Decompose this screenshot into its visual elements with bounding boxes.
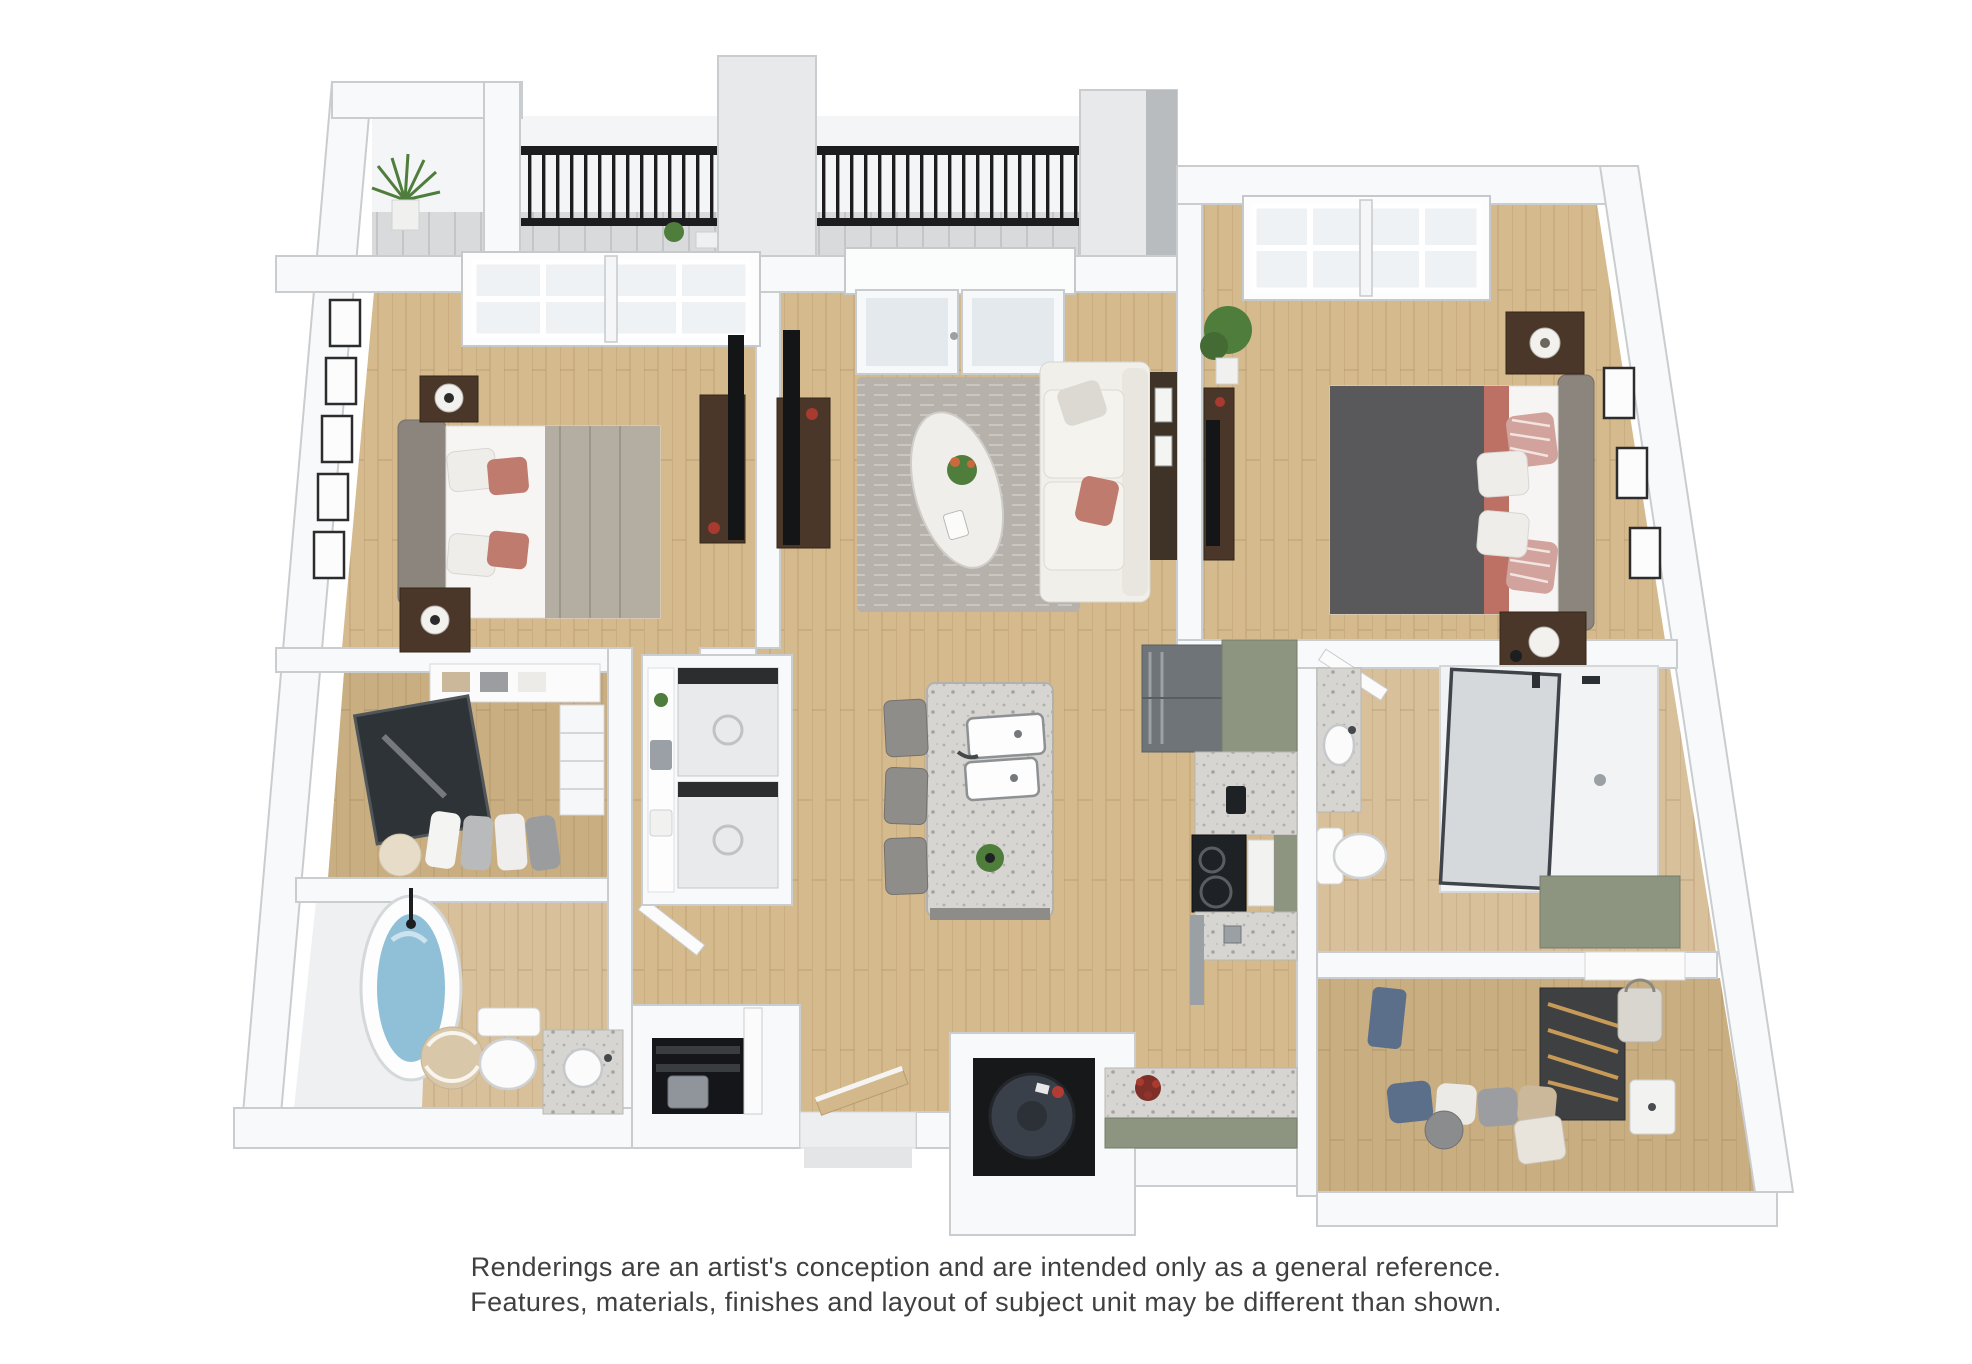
entry-closet-door-leaf xyxy=(744,1008,762,1114)
bedroom2-console-decor xyxy=(1215,397,1225,407)
entry-closet-safe xyxy=(668,1076,708,1108)
sofa-backrest xyxy=(1122,368,1148,596)
coffee-table-flowers-2 xyxy=(967,460,975,468)
bedroom2-pillow-white-1 xyxy=(1477,450,1530,497)
laundry-basket xyxy=(650,810,672,836)
bedroom2-lamp-top-finial xyxy=(1540,338,1550,348)
entry-closet-shelf-1 xyxy=(656,1046,740,1054)
closet2-pouf xyxy=(1425,1111,1463,1149)
paper-towel-holder xyxy=(1248,840,1274,906)
french-door-handle xyxy=(950,332,958,340)
sofa-console-frame-1 xyxy=(1155,388,1172,422)
kitchen-outlet xyxy=(1224,926,1241,943)
bedroom1-console-decor xyxy=(708,522,720,534)
bedroom1-tv xyxy=(728,335,744,540)
shower-valve xyxy=(1532,672,1540,688)
bedroom1-window xyxy=(462,252,760,346)
bedroom2-tv xyxy=(1206,420,1220,546)
island-plant-pot xyxy=(985,853,995,863)
wall-bedroom2-left xyxy=(1177,204,1202,640)
bath1-faucet xyxy=(604,1054,612,1062)
closet2-denim-hamper xyxy=(1367,986,1407,1049)
island-sink-2 xyxy=(965,758,1039,801)
living-sofa xyxy=(1040,362,1150,602)
sofa-console-frame-2 xyxy=(1155,436,1172,466)
french-door-glass-left xyxy=(866,298,948,366)
bath1-sink xyxy=(564,1049,602,1087)
wall-closet2-bottom xyxy=(1317,1192,1777,1226)
laundry-closet xyxy=(642,655,792,905)
laundry-shelf-plant xyxy=(654,693,668,707)
kitchen-cabinet-bottom-front xyxy=(1105,1118,1297,1148)
toilet1-tank xyxy=(478,1008,540,1036)
bedroom1-lamp-bottom-finial xyxy=(430,615,440,625)
bedroom1-lamp-top-finial xyxy=(444,393,454,403)
laundry-detergent-box xyxy=(650,740,672,770)
bedroom2-plant-leaves xyxy=(1200,332,1228,360)
living-tv xyxy=(783,330,800,545)
entry-closet-shelf-2 xyxy=(656,1064,740,1072)
entry-outside-step xyxy=(804,1148,912,1168)
washer-control-band xyxy=(678,668,778,684)
bedroom2-window xyxy=(1243,196,1490,300)
bedroom1-headboard xyxy=(398,420,446,605)
closet2-bag-beige xyxy=(1618,988,1662,1042)
dryer-control-band xyxy=(678,782,778,797)
wall-kitchen-bath2 xyxy=(1297,640,1317,1196)
island-stools xyxy=(884,699,929,895)
floor-plan-rendering xyxy=(0,0,1972,1364)
shower-glass xyxy=(1440,669,1559,888)
island-base-shadow xyxy=(930,908,1050,920)
closet2-top-shelf xyxy=(1585,952,1685,980)
washer xyxy=(678,668,778,776)
kitchen-island xyxy=(884,683,1053,920)
closet2-box-knob xyxy=(1648,1103,1656,1111)
bedroom1-throw-blanket xyxy=(545,426,660,618)
disclaimer-line-1: Renderings are an artist's conception an… xyxy=(0,1250,1972,1285)
kitchen-counter-2 xyxy=(1195,912,1297,960)
shower-drain xyxy=(1594,774,1606,786)
french-door-glass-right xyxy=(972,298,1054,366)
kitchen-cabinet-mid xyxy=(1274,835,1297,912)
living-console-decor xyxy=(806,408,818,420)
bedroom2-accent-blanket xyxy=(1484,386,1509,614)
bedroom2-nightstand-decor xyxy=(1510,650,1522,662)
balcony-plant-small-1 xyxy=(664,222,684,242)
closet1-folded-clothes-1 xyxy=(442,672,470,692)
bedroom2-plant-pot xyxy=(1216,358,1238,384)
wall-balcony-left xyxy=(484,82,520,258)
bedroom1-pillow-rose-2 xyxy=(486,530,530,570)
closet1-folded-clothes-2 xyxy=(480,672,508,692)
closet1-folded-clothes-3 xyxy=(518,672,546,692)
shower-head xyxy=(1582,676,1600,684)
bedroom2-headboard xyxy=(1558,375,1594,630)
sink-drain-1 xyxy=(1014,730,1022,738)
toilet2-bowl xyxy=(1334,834,1386,878)
kitchen-cabinet-top xyxy=(1222,640,1297,752)
fruit-1 xyxy=(1136,1078,1144,1086)
water-heater-valve xyxy=(1052,1086,1064,1098)
bedroom2-pillow-white-2 xyxy=(1476,510,1530,558)
bedroom2-lamp-bottom xyxy=(1529,627,1559,657)
island-sink-1 xyxy=(967,713,1046,758)
fruit-3 xyxy=(1144,1091,1152,1099)
closet2-bag-cream xyxy=(1513,1115,1567,1165)
screenshot-canvas: Renderings are an artist's conception an… xyxy=(0,0,1972,1364)
bath2-green-cabinet xyxy=(1540,876,1680,948)
sink-drain-2 xyxy=(1010,774,1018,782)
disclaimer-line-2: Features, materials, finishes and layout… xyxy=(0,1285,1972,1320)
closet1-pouf xyxy=(379,834,421,876)
bathtub-faucet-head xyxy=(406,919,416,929)
coffee-table-flowers xyxy=(950,457,960,467)
wall-kitchen-bottom xyxy=(1135,1148,1317,1186)
kitchen-counter-bottom xyxy=(1105,1068,1297,1118)
dryer xyxy=(678,782,778,888)
water-heater-core xyxy=(1017,1101,1047,1131)
coffee-maker xyxy=(1226,786,1246,814)
railing-bars-left xyxy=(514,152,713,222)
disclaimer-caption: Renderings are an artist's conception an… xyxy=(0,1250,1972,1320)
wall-closet1-bath1 xyxy=(296,878,608,902)
cooktop xyxy=(1192,835,1246,912)
balcony-pillar-2-shadow xyxy=(1146,90,1177,258)
bedroom2-duvet xyxy=(1330,386,1484,614)
entry-threshold xyxy=(800,1112,916,1148)
fruit-2 xyxy=(1152,1080,1160,1088)
bedroom1-pillow-rose-1 xyxy=(487,456,530,495)
bath2-faucet xyxy=(1348,726,1356,734)
dishwasher-front xyxy=(1190,915,1204,1005)
utility-closet xyxy=(973,1058,1095,1176)
balcony-plant-pot xyxy=(392,200,419,230)
balcony-pillar-1 xyxy=(718,56,816,258)
toilet1-bowl xyxy=(480,1039,536,1089)
